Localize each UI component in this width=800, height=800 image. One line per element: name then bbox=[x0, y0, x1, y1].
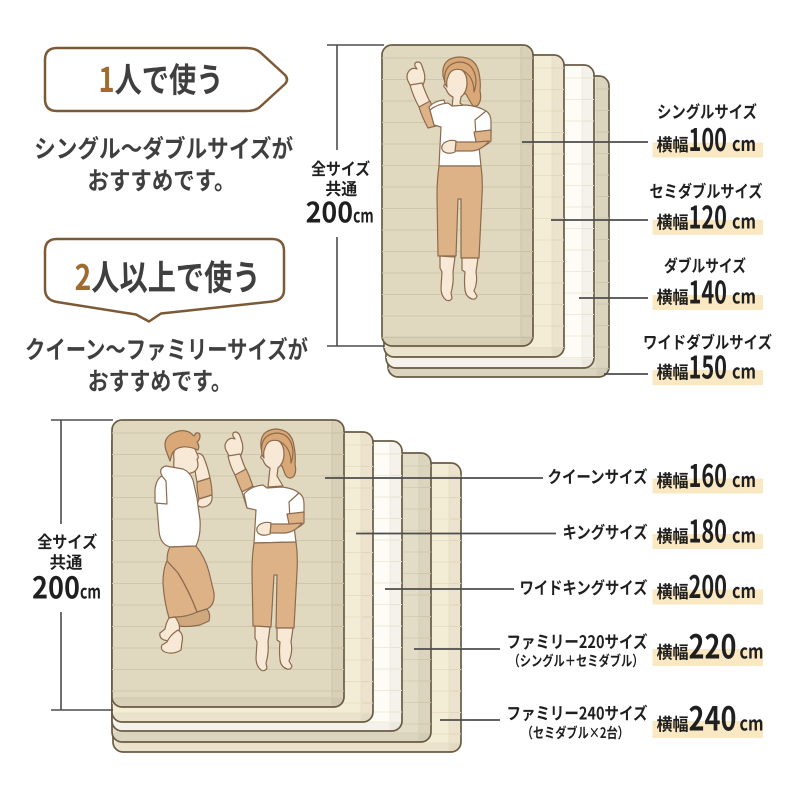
svg-text:2人以上で使う: 2人以上で使う bbox=[75, 250, 261, 301]
svg-text:キングサイズ: キングサイズ bbox=[563, 519, 648, 544]
svg-text:横幅160cm: 横幅160cm bbox=[657, 451, 757, 496]
svg-text:横幅220cm: 横幅220cm bbox=[657, 621, 764, 669]
svg-text:（セミダブル×2台）: （セミダブル×2台） bbox=[522, 722, 629, 743]
svg-text:200cm: 200cm bbox=[32, 563, 101, 608]
svg-text:（シングル＋セミダブル）: （シングル＋セミダブル） bbox=[509, 650, 644, 671]
svg-text:シングル〜ダブルサイズが: シングル〜ダブルサイズが bbox=[34, 130, 293, 166]
svg-text:おすすめです。: おすすめです。 bbox=[88, 362, 232, 398]
svg-text:ファミリー240サイズ: ファミリー240サイズ bbox=[507, 700, 648, 725]
svg-text:横幅180cm: 横幅180cm bbox=[657, 507, 757, 552]
svg-text:ワイドキングサイズ: ワイドキングサイズ bbox=[520, 574, 648, 599]
svg-text:おすすめです。: おすすめです。 bbox=[88, 162, 236, 198]
svg-text:クイーンサイズ: クイーンサイズ bbox=[548, 463, 648, 488]
svg-text:1人で使う: 1人で使う bbox=[99, 53, 224, 102]
svg-text:横幅200cm: 横幅200cm bbox=[657, 562, 757, 607]
svg-text:200cm: 200cm bbox=[306, 190, 374, 232]
svg-text:横幅240cm: 横幅240cm bbox=[657, 693, 764, 741]
